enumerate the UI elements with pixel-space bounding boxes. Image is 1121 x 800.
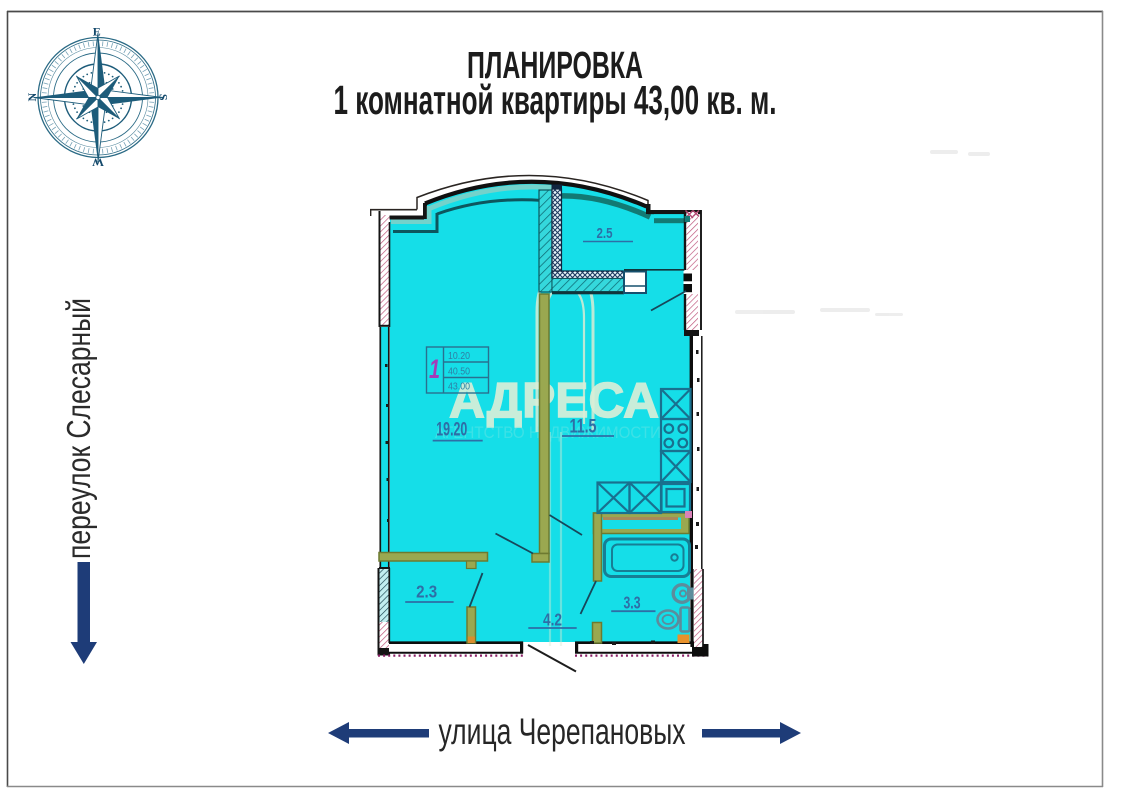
svg-text:2.5: 2.5	[597, 226, 613, 242]
svg-text:4.2: 4.2	[543, 610, 562, 630]
svg-text:E: E	[93, 25, 101, 39]
svg-text:11.5: 11.5	[570, 416, 597, 438]
svg-text:1 комнатной квартиры 43,00 кв.: 1 комнатной квартиры 43,00 кв. м.	[334, 77, 777, 123]
svg-text:S: S	[156, 94, 170, 101]
svg-text:N: N	[25, 93, 39, 102]
svg-text:переулок Слесарный: переулок Слесарный	[60, 298, 97, 559]
svg-text:40.50: 40.50	[448, 367, 470, 378]
svg-text:улица Черепановых: улица Черепановых	[439, 711, 686, 752]
svg-text:43.00: 43.00	[448, 382, 470, 393]
svg-text:АДРЕСА: АДРЕСА	[449, 374, 659, 428]
svg-text:19.20: 19.20	[436, 419, 467, 441]
svg-text:2.3: 2.3	[416, 582, 437, 602]
svg-text:3.3: 3.3	[624, 593, 641, 613]
svg-text:1: 1	[429, 354, 440, 384]
svg-text:10.20: 10.20	[448, 351, 470, 362]
svg-text:W: W	[92, 155, 104, 169]
